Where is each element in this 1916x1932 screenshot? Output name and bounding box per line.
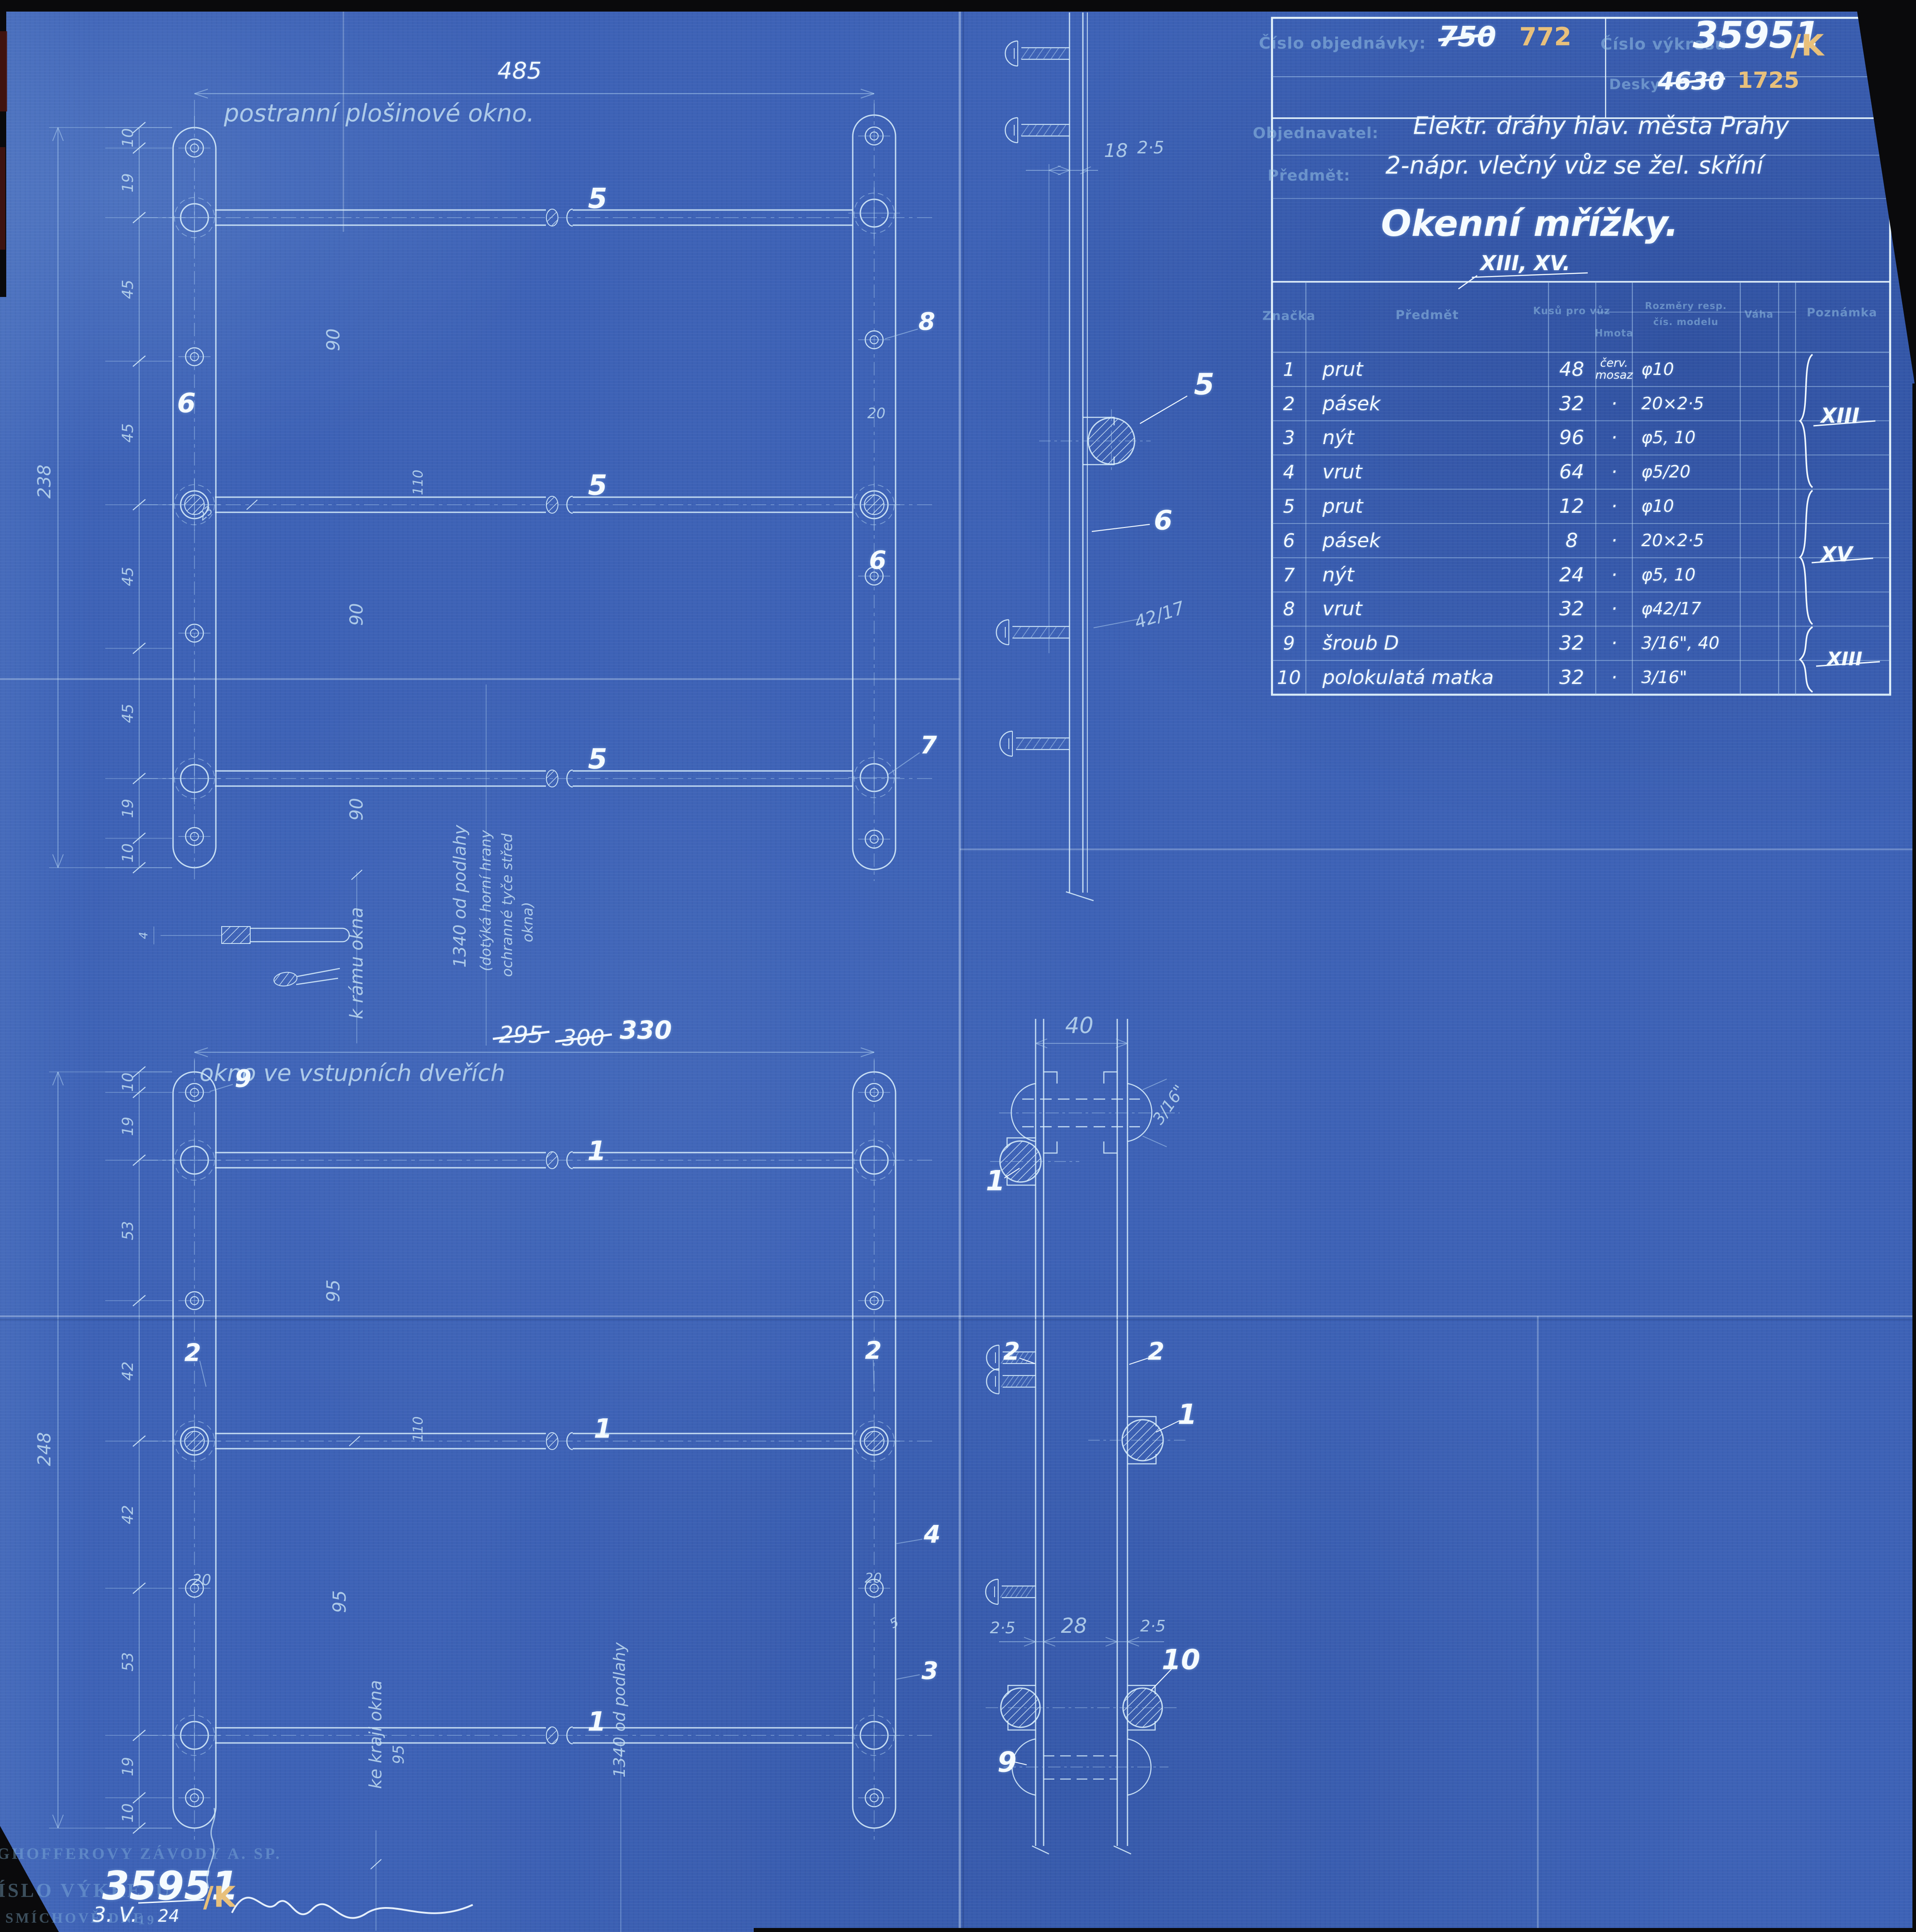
blueprint-sheet: Číslo objednávky:750772Číslo výkresu3595…	[0, 0, 1916, 1932]
corrections-overlay	[0, 0, 1916, 1932]
